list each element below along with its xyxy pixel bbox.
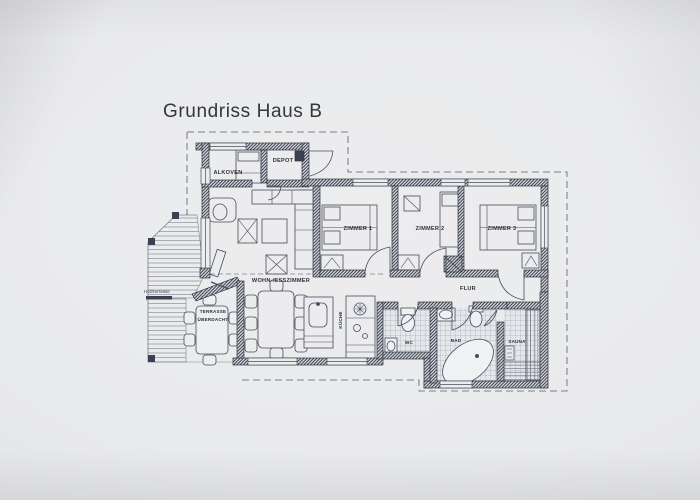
terrace-dining-set <box>184 295 240 365</box>
dining-set <box>245 280 307 359</box>
zimmer3-door <box>498 274 524 300</box>
zimmer2-door <box>420 248 446 272</box>
label-wohn-esszimmer: WOHN-/ESSZIMMER <box>252 278 310 284</box>
label-wc: WC <box>405 340 414 345</box>
label-zimmer2: ZIMMER 2 <box>416 226 445 232</box>
alkoven-bed <box>236 150 261 183</box>
zimmer3-furniture <box>480 205 539 268</box>
entry-door <box>309 151 333 176</box>
label-alkoven: ALKOVEN <box>213 170 242 176</box>
floorplan-photo: { "photo": { "title": "Grundriss Haus B"… <box>0 0 700 500</box>
label-kueche: KÜCHE <box>337 311 343 328</box>
floorplan-drawing: ALKOVEN DEPOT ZIMMER 1 ZIMMER 2 ZIMMER 3… <box>0 0 700 500</box>
label-zimmer1: ZIMMER 1 <box>344 226 373 232</box>
terrace-post <box>148 238 155 245</box>
label-flur: FLUR <box>460 286 476 292</box>
label-terrasse-1: TERRASSE <box>200 309 227 314</box>
label-zimmer3: ZIMMER 3 <box>488 226 517 232</box>
label-terrasse-2: ÜBERDACHT <box>198 316 229 322</box>
terrace-post <box>172 212 179 219</box>
chimney <box>295 151 304 161</box>
label-sauna: SAUNA <box>508 339 526 344</box>
label-depot: DEPOT <box>273 158 294 164</box>
terrace-post <box>148 355 155 362</box>
label-holzterrasse: Holzterrasse <box>144 289 170 294</box>
label-bad: BAD <box>451 338 462 343</box>
railing-mark <box>146 296 172 300</box>
zimmer1-door <box>365 247 390 272</box>
